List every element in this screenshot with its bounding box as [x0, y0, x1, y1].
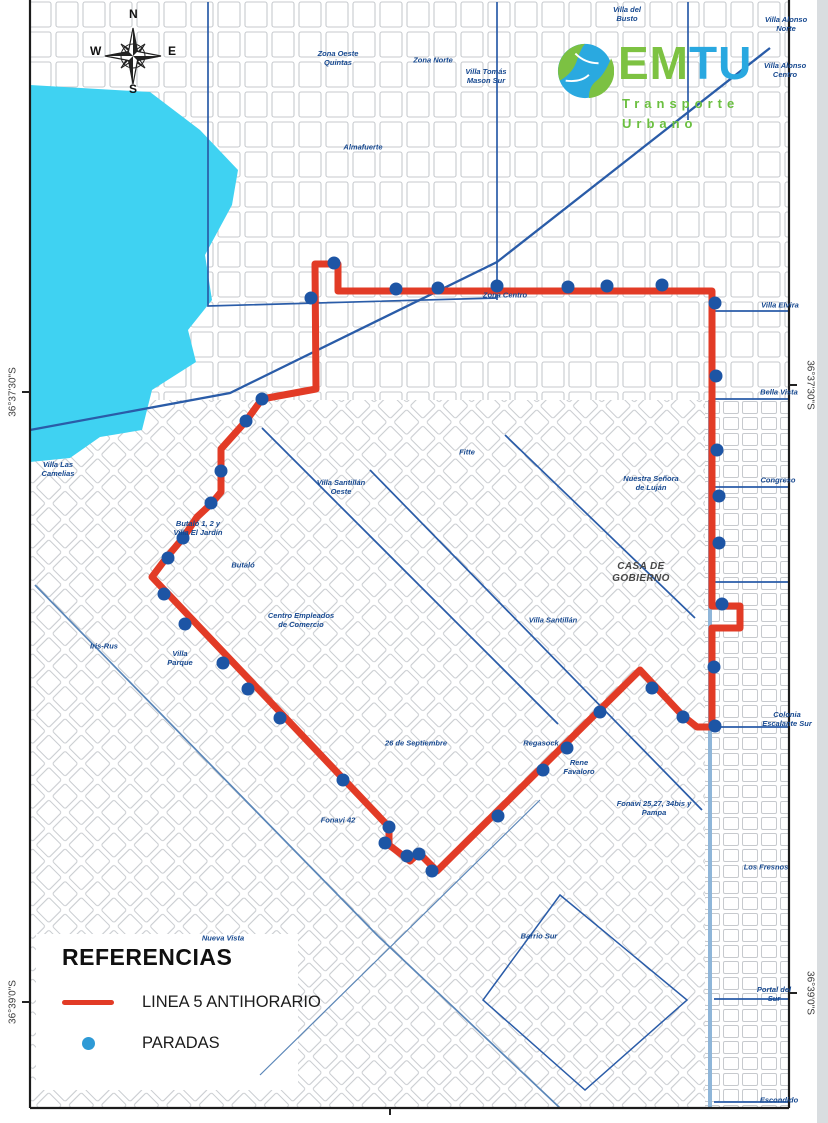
bus-stop-dot	[711, 444, 724, 457]
bus-stop-dot	[491, 280, 504, 293]
logo-em: EM	[618, 37, 689, 89]
bus-stop-dot	[716, 598, 729, 611]
bus-stop-dot	[177, 532, 190, 545]
bus-stop-dot	[646, 682, 659, 695]
bus-stop-dot	[274, 712, 287, 725]
logo-subtitle-2: Urbano	[622, 116, 698, 131]
bus-stop-dot	[162, 552, 175, 565]
page-edge-shadow	[817, 0, 828, 1123]
compass-e-label: E	[168, 44, 176, 58]
compass-w-label: W	[90, 44, 101, 58]
bus-stop-dot	[179, 618, 192, 631]
bus-stop-dot	[537, 764, 550, 777]
coordinate-label: 36°39'0"S	[805, 971, 816, 1015]
coordinate-label: 36°37'30"S	[805, 360, 816, 410]
bus-stop-dot	[713, 537, 726, 550]
bus-stop-dot	[256, 393, 269, 406]
emtu-logo-icon	[556, 42, 614, 100]
bus-stop-dot	[337, 774, 350, 787]
compass-s-label: S	[129, 82, 137, 96]
bus-stop-dot	[710, 370, 723, 383]
bus-stop-dot	[709, 297, 722, 310]
bus-stop-dot	[240, 415, 253, 428]
bus-stop-dot	[205, 497, 218, 510]
route-line-swatch	[62, 1000, 114, 1005]
bus-stop-dot	[432, 282, 445, 295]
coordinate-label: 36°37'30"S	[8, 367, 19, 417]
bus-stop-dot	[601, 280, 614, 293]
bus-stop-dot	[215, 465, 228, 478]
bus-stop-dot	[328, 257, 341, 270]
bus-stop-dot	[401, 850, 414, 863]
bus-stop-dot	[390, 283, 403, 296]
emtu-logo: EMTU Transporte Urbano	[556, 40, 786, 145]
compass-n-label: N	[129, 7, 138, 21]
bus-stop-dot	[383, 821, 396, 834]
bus-stop-dot	[413, 848, 426, 861]
bus-stop-dot	[426, 865, 439, 878]
bus-stop-dot	[242, 683, 255, 696]
bus-stop-dot	[708, 661, 721, 674]
logo-wordmark: EMTU	[618, 40, 752, 86]
legend-stops-label: PARADAS	[142, 1034, 220, 1053]
bus-stop-dot	[709, 720, 722, 733]
compass-rose: N E S W	[88, 10, 178, 102]
coordinate-label: 36°39'0"S	[8, 980, 19, 1024]
bus-stop-dot	[217, 657, 230, 670]
stop-dot-swatch	[82, 1037, 95, 1050]
bus-stop-dot	[713, 490, 726, 503]
map-page: Villa del BustoVilla Alonso NorteVilla A…	[0, 0, 828, 1123]
bus-stop-dot	[656, 279, 669, 292]
legend-stops-row: PARADAS	[62, 1034, 392, 1053]
logo-tu: TU	[689, 37, 752, 89]
legend-route-row: LINEA 5 ANTIHORARIO	[62, 993, 392, 1012]
bus-stop-dot	[379, 837, 392, 850]
legend-route-label: LINEA 5 ANTIHORARIO	[142, 993, 321, 1012]
bus-stop-dot	[677, 711, 690, 724]
bus-stop-dot	[305, 292, 318, 305]
legend: REFERENCIAS LINEA 5 ANTIHORARIO PARADAS	[62, 944, 392, 1053]
bus-stop-dot	[594, 706, 607, 719]
bus-stop-dot	[492, 810, 505, 823]
bus-stop-dot	[562, 281, 575, 294]
bus-stop-dot	[158, 588, 171, 601]
logo-subtitle-1: Transporte	[622, 96, 739, 111]
legend-title: REFERENCIAS	[62, 944, 392, 971]
bus-stop-dot	[561, 742, 574, 755]
